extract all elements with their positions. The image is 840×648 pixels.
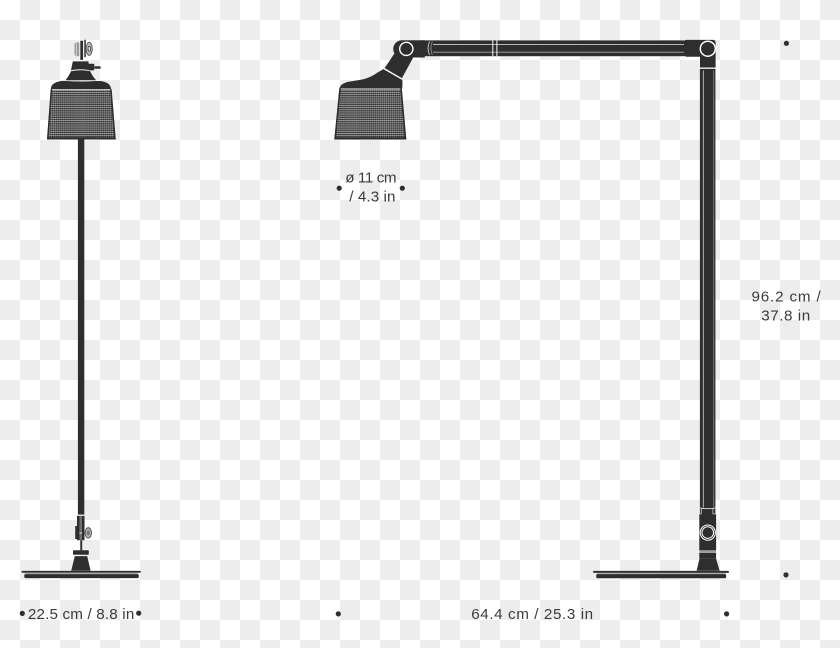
svg-text:64.4 cm / 25.3 in: 64.4 cm / 25.3 in bbox=[471, 606, 593, 623]
svg-text:96.2 cm /: 96.2 cm / bbox=[751, 288, 821, 305]
svg-text:ø 11 cm: ø 11 cm bbox=[345, 169, 396, 186]
svg-text:/ 4.3 in: / 4.3 in bbox=[349, 188, 395, 205]
svg-text:22.5 cm / 8.8 in: 22.5 cm / 8.8 in bbox=[28, 606, 135, 623]
svg-text:37.8 in: 37.8 in bbox=[761, 307, 810, 324]
